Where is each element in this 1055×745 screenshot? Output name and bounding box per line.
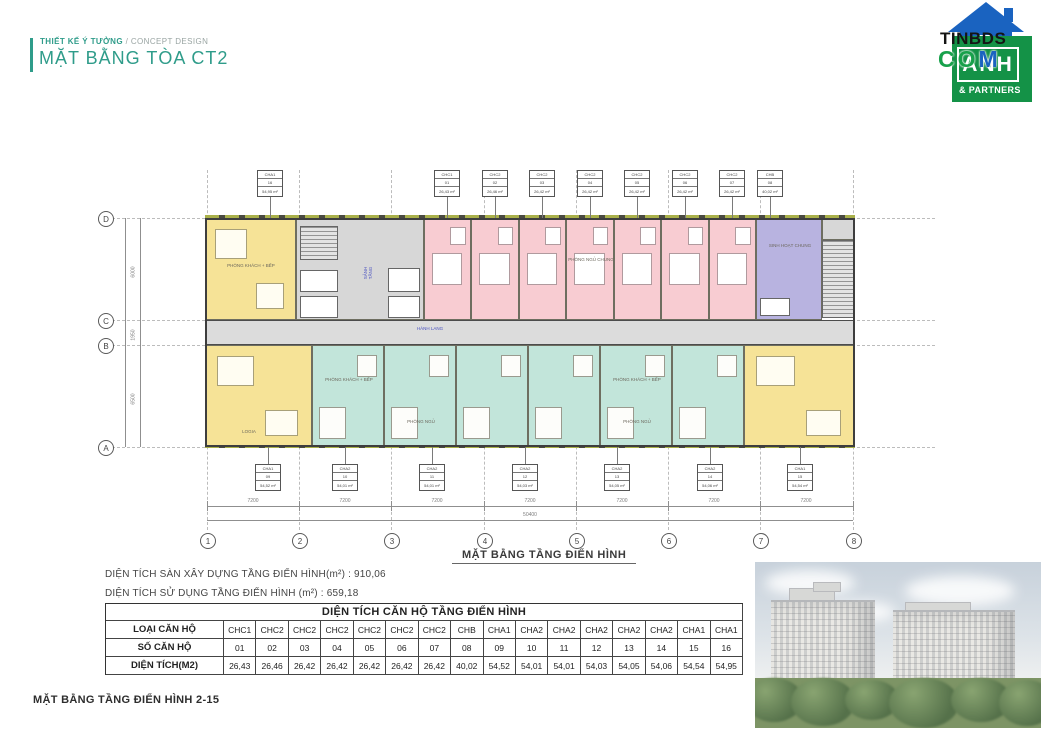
unit-tag-number: 02 bbox=[483, 179, 507, 187]
tinbds-anh-partners-logo: ANH & PARTNERS TINBDS COM bbox=[936, 2, 1048, 114]
unit-tag: CHC20226,46 m² bbox=[482, 170, 508, 197]
corridor bbox=[205, 320, 855, 345]
grid-bubble-col: 8 bbox=[846, 533, 862, 549]
unit-teal bbox=[672, 345, 744, 447]
table-cell-number: 11 bbox=[548, 639, 580, 657]
tree bbox=[889, 678, 959, 728]
window-strip-bottom bbox=[205, 445, 855, 448]
table-cell-type: CHA1 bbox=[678, 621, 710, 639]
unit-teal bbox=[528, 345, 600, 447]
room-label: SINH HOẠT CHUNG bbox=[761, 244, 819, 249]
unit-tag-number: 05 bbox=[625, 179, 649, 187]
unit-tag-number: 16 bbox=[258, 179, 282, 187]
tag-leader-line bbox=[732, 196, 733, 218]
tag-leader-line bbox=[710, 447, 711, 464]
unit-tag: CHA21154,01 m² bbox=[419, 464, 445, 491]
table-cell-area: 26,43 bbox=[224, 657, 256, 675]
unit-tag: CHC20626,42 m² bbox=[672, 170, 698, 197]
table-cell-area: 54,01 bbox=[548, 657, 580, 675]
table-cell-type: CHA2 bbox=[613, 621, 645, 639]
elevator-shaft bbox=[300, 296, 338, 318]
unit-teal bbox=[312, 345, 384, 447]
grid-bubble-col: 5 bbox=[569, 533, 585, 549]
unit-tag: CHA11554,54 m² bbox=[787, 464, 813, 491]
unit-tag-type: CHC2 bbox=[625, 171, 649, 179]
unit-tag-area: 54,01 m² bbox=[420, 481, 444, 490]
unit-tag-area: 26,46 m² bbox=[483, 187, 507, 196]
dim-line-left bbox=[125, 218, 126, 447]
unit-tag: CHA21254,03 m² bbox=[512, 464, 538, 491]
table-cell-type: CHA1 bbox=[484, 621, 516, 639]
table-cell-type: CHA2 bbox=[646, 621, 678, 639]
stat-construction-area: DIỆN TÍCH SÀN XÂY DỰNG TẦNG ĐIỂN HÌNH(m²… bbox=[105, 569, 386, 580]
tag-leader-line bbox=[542, 196, 543, 218]
concept-design-sheet: THIẾT KẾ Ý TƯỞNG / CONCEPT DESIGN MẶT BẰ… bbox=[0, 0, 1055, 745]
building-rendering bbox=[755, 562, 1041, 728]
grid-bubble-row: D bbox=[98, 211, 114, 227]
room-label: PHÒNG NGỦ CHUNG bbox=[560, 258, 622, 263]
grid-bubble-col: 4 bbox=[477, 533, 493, 549]
table-cell-area: 54,52 bbox=[484, 657, 516, 675]
unit-tag-type: CHC2 bbox=[673, 171, 697, 179]
unit-teal bbox=[456, 345, 528, 447]
unit-tag: CHA10954,52 m² bbox=[255, 464, 281, 491]
unit-tag-area: 54,95 m² bbox=[258, 187, 282, 196]
unit-tag-type: CHA2 bbox=[513, 465, 537, 473]
unit-tag-type: CHB bbox=[758, 171, 782, 179]
table-cell-area: 54,05 bbox=[613, 657, 645, 675]
dim-label: 7200 bbox=[792, 498, 820, 504]
table-cell-number: 12 bbox=[581, 639, 613, 657]
unit-tag-type: CHC2 bbox=[530, 171, 554, 179]
plan-caption: MẶT BẰNG TẦNG ĐIỂN HÌNH bbox=[452, 549, 636, 564]
unit-tag: CHA21054,01 m² bbox=[332, 464, 358, 491]
stat-usable-area: DIỆN TÍCH SỬ DỤNG TẦNG ĐIỂN HÌNH (m²) : … bbox=[105, 588, 359, 599]
table-cell-number: 16 bbox=[711, 639, 743, 657]
unit-tag-number: 08 bbox=[758, 179, 782, 187]
table-cell-area: 54,95 bbox=[711, 657, 743, 675]
table-cell-number: 14 bbox=[646, 639, 678, 657]
room-label: HÀNH LANG bbox=[404, 327, 456, 332]
unit-teal bbox=[384, 345, 456, 447]
window-strip-top bbox=[205, 215, 855, 218]
tag-leader-line bbox=[685, 196, 686, 218]
table-title: DIỆN TÍCH CĂN HỘ TẦNG ĐIỂN HÌNH bbox=[106, 604, 743, 621]
unit-pink bbox=[566, 218, 614, 320]
unit-tag-area: 26,42 m² bbox=[578, 187, 602, 196]
table-cell-number: 06 bbox=[386, 639, 418, 657]
unit-tag-area: 26,42 m² bbox=[625, 187, 649, 196]
table-cell-number: 02 bbox=[256, 639, 288, 657]
dim-label-left: 6500 bbox=[131, 393, 137, 404]
room-label: PHÒNG NGỦ bbox=[400, 420, 442, 425]
unit-tag-type: CHA2 bbox=[698, 465, 722, 473]
tag-leader-line bbox=[590, 196, 591, 218]
table-cell-area: 54,01 bbox=[516, 657, 548, 675]
tag-leader-line bbox=[345, 447, 346, 464]
grid-bubble-col: 2 bbox=[292, 533, 308, 549]
stair-block bbox=[300, 226, 338, 260]
dim-label: 7200 bbox=[423, 498, 451, 504]
table-cell-number: 10 bbox=[516, 639, 548, 657]
unit-pink bbox=[519, 218, 566, 320]
room-label: SẢNH TẦNG bbox=[364, 266, 374, 280]
table-cell-area: 26,42 bbox=[354, 657, 386, 675]
unit-tag-number: 01 bbox=[435, 179, 459, 187]
stair-block-right bbox=[822, 240, 855, 318]
unit-tag-number: 13 bbox=[605, 473, 629, 481]
table-cell-type: CHC2 bbox=[321, 621, 353, 639]
grid-bubble-col: 7 bbox=[753, 533, 769, 549]
room-label: PHÒNG KHÁCH + BẾP bbox=[212, 264, 290, 269]
tag-leader-line bbox=[525, 447, 526, 464]
dim-label: 7200 bbox=[608, 498, 636, 504]
unit-tag-area: 54,01 m² bbox=[333, 481, 357, 490]
unit-tag-number: 12 bbox=[513, 473, 537, 481]
tag-leader-line bbox=[800, 447, 801, 464]
table-cell-area: 54,06 bbox=[646, 657, 678, 675]
grid-bubble-row: A bbox=[98, 440, 114, 456]
unit-tag: CHB0840,02 m² bbox=[757, 170, 783, 197]
table-cell-number: 13 bbox=[613, 639, 645, 657]
unit-tag-area: 26,42 m² bbox=[673, 187, 697, 196]
dim-label-left: 1950 bbox=[131, 329, 137, 340]
unit-tag-number: 09 bbox=[256, 473, 280, 481]
core-right bbox=[822, 218, 855, 240]
grid-bubble-col: 6 bbox=[661, 533, 677, 549]
room-label: LOGIA bbox=[234, 430, 264, 435]
tag-leader-line bbox=[495, 196, 496, 218]
unit-tag-number: 10 bbox=[333, 473, 357, 481]
unit-pink bbox=[471, 218, 519, 320]
table-cell-number: 07 bbox=[419, 639, 451, 657]
unit-tag-area: 26,42 m² bbox=[720, 187, 744, 196]
unit-tag-number: 14 bbox=[698, 473, 722, 481]
unit-pink bbox=[661, 218, 709, 320]
elevator-shaft bbox=[388, 268, 420, 292]
unit-tag-number: 06 bbox=[673, 179, 697, 187]
table-cell-area: 26,42 bbox=[386, 657, 418, 675]
unit-top-left-yellow bbox=[205, 218, 296, 320]
unit-tag: CHC20426,42 m² bbox=[577, 170, 603, 197]
table-cell-area: 26,42 bbox=[419, 657, 451, 675]
dim-label: 7200 bbox=[239, 498, 267, 504]
table-cell-type: CHA1 bbox=[711, 621, 743, 639]
table-cell-area: 26,42 bbox=[321, 657, 353, 675]
table-cell-type: CHA2 bbox=[581, 621, 613, 639]
unit-tag-area: 54,03 m² bbox=[513, 481, 537, 490]
partners-word: & PARTNERS bbox=[959, 85, 1021, 95]
unit-tag-type: CHA2 bbox=[420, 465, 444, 473]
unit-tag: CHA21454,06 m² bbox=[697, 464, 723, 491]
dim-total-label: 50400 bbox=[516, 512, 544, 518]
table-cell-number: 15 bbox=[678, 639, 710, 657]
table-cell-area: 40,02 bbox=[451, 657, 483, 675]
dim-label: 7200 bbox=[700, 498, 728, 504]
unit-tag-type: CHC2 bbox=[578, 171, 602, 179]
unit-tag-area: 54,06 m² bbox=[698, 481, 722, 490]
grid-bubble-row: C bbox=[98, 313, 114, 329]
table-cell-type: CHB bbox=[451, 621, 483, 639]
unit-tag-type: CHA1 bbox=[256, 465, 280, 473]
unit-tag: CHA11654,95 m² bbox=[257, 170, 283, 197]
table-cell-area: 26,46 bbox=[256, 657, 288, 675]
dim-line-total bbox=[207, 520, 853, 521]
tag-leader-line bbox=[637, 196, 638, 218]
tag-leader-line bbox=[432, 447, 433, 464]
table-cell-type: CHA2 bbox=[516, 621, 548, 639]
unit-tag: CHC20326,42 m² bbox=[529, 170, 555, 197]
elevator-shaft bbox=[388, 296, 420, 318]
table-cell-number: 04 bbox=[321, 639, 353, 657]
table-row-header: LOẠI CĂN HỘ bbox=[106, 621, 224, 639]
dim-line-left bbox=[140, 218, 141, 447]
table-cell-type: CHC1 bbox=[224, 621, 256, 639]
unit-tag-type: CHC2 bbox=[483, 171, 507, 179]
unit-tag-area: 54,52 m² bbox=[256, 481, 280, 490]
unit-teal bbox=[600, 345, 672, 447]
room-label: PHÒNG NGỦ bbox=[616, 420, 658, 425]
unit-tag-number: 15 bbox=[788, 473, 812, 481]
unit-tag-type: CHC1 bbox=[435, 171, 459, 179]
room-label: PHÒNG KHÁCH + BẾP bbox=[602, 378, 672, 383]
table-cell-area: 26,42 bbox=[289, 657, 321, 675]
table-cell-type: CHC2 bbox=[256, 621, 288, 639]
unit-tag: CHC20526,42 m² bbox=[624, 170, 650, 197]
unit-tag-number: 04 bbox=[578, 179, 602, 187]
table-cell-number: 09 bbox=[484, 639, 516, 657]
tag-leader-line bbox=[617, 447, 618, 464]
table-row-header: DIỆN TÍCH(M2) bbox=[106, 657, 224, 675]
room-label: PHÒNG KHÁCH + BẾP bbox=[314, 378, 384, 383]
unit-bottom-right-yellow bbox=[744, 345, 855, 447]
com-word: COM bbox=[938, 46, 1001, 73]
table-cell-type: CHC2 bbox=[386, 621, 418, 639]
unit-tag-type: CHA2 bbox=[605, 465, 629, 473]
grid-bubble-col: 1 bbox=[200, 533, 216, 549]
unit-pink bbox=[709, 218, 756, 320]
unit-tag-type: CHC2 bbox=[720, 171, 744, 179]
grid-bubble-col: 3 bbox=[384, 533, 400, 549]
tag-leader-line bbox=[770, 196, 771, 218]
unit-tag-area: 54,54 m² bbox=[788, 481, 812, 490]
unit-tag: CHC20726,42 m² bbox=[719, 170, 745, 197]
table-cell-number: 05 bbox=[354, 639, 386, 657]
dim-line bbox=[207, 506, 853, 507]
tag-leader-line bbox=[447, 196, 448, 218]
unit-tag: CHC10126,43 m² bbox=[434, 170, 460, 197]
unit-tag-number: 07 bbox=[720, 179, 744, 187]
dim-label-left: 6000 bbox=[131, 266, 137, 277]
bathroom-block bbox=[760, 298, 790, 316]
unit-tag-type: CHA1 bbox=[788, 465, 812, 473]
apartment-area-table: DIỆN TÍCH CĂN HỘ TẦNG ĐIỂN HÌNH LOẠI CĂN… bbox=[105, 603, 743, 675]
unit-pink bbox=[614, 218, 661, 320]
table-cell-type: CHC2 bbox=[354, 621, 386, 639]
tag-leader-line bbox=[268, 447, 269, 464]
unit-pink bbox=[424, 218, 471, 320]
table-row-header: SỐ CĂN HỘ bbox=[106, 639, 224, 657]
tag-leader-line bbox=[270, 196, 271, 218]
tower-cap bbox=[813, 582, 841, 592]
sheet-footer-label: MẶT BẰNG TẦNG ĐIỂN HÌNH 2-15 bbox=[33, 694, 219, 706]
unit-tag-area: 26,43 m² bbox=[435, 187, 459, 196]
unit-tag-area: 54,05 m² bbox=[605, 481, 629, 490]
grid-bubble-row: B bbox=[98, 338, 114, 354]
dim-tick bbox=[853, 501, 854, 511]
unit-tag: CHA21354,05 m² bbox=[604, 464, 630, 491]
table-cell-number: 01 bbox=[224, 639, 256, 657]
unit-tag-number: 03 bbox=[530, 179, 554, 187]
unit-tag-type: CHA1 bbox=[258, 171, 282, 179]
dim-label: 7200 bbox=[331, 498, 359, 504]
dim-label: 7200 bbox=[516, 498, 544, 504]
table-cell-area: 54,03 bbox=[581, 657, 613, 675]
table-cell-area: 54,54 bbox=[678, 657, 710, 675]
elevator-shaft bbox=[300, 270, 338, 292]
unit-tag-area: 26,42 m² bbox=[530, 187, 554, 196]
table-cell-type: CHC2 bbox=[289, 621, 321, 639]
table-cell-type: CHA2 bbox=[548, 621, 580, 639]
table-cell-number: 03 bbox=[289, 639, 321, 657]
table-cell-number: 08 bbox=[451, 639, 483, 657]
unit-tag-type: CHA2 bbox=[333, 465, 357, 473]
table-cell-type: CHC2 bbox=[419, 621, 451, 639]
unit-tag-area: 40,02 m² bbox=[758, 187, 782, 196]
unit-tag-number: 11 bbox=[420, 473, 444, 481]
